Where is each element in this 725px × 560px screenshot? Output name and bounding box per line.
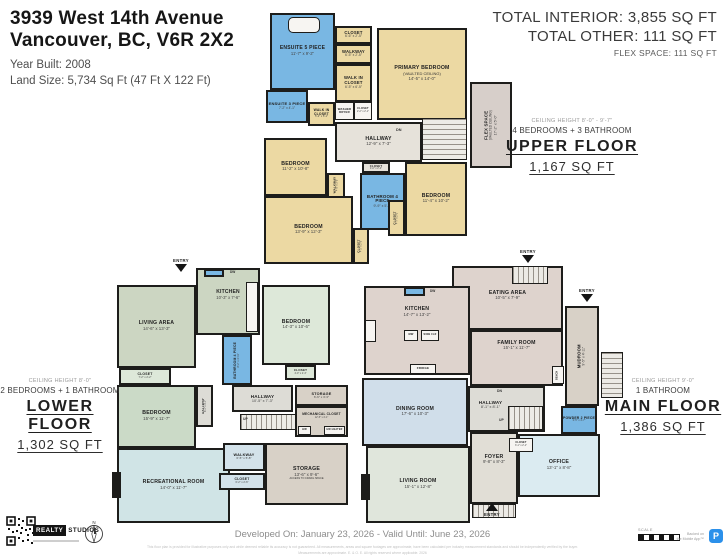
- mudroom: MUDROOM9'-5" x 4'-11": [565, 306, 599, 406]
- recreational-room: RECREATIONAL ROOM14'-0" x 11'-7": [117, 448, 230, 523]
- compass-north-label: N: [92, 520, 95, 525]
- ensuite-3-piece: ENSUITE 3 PIECE7'-2" x 4'-1": [266, 90, 308, 123]
- entry-main-top: ENTRY: [516, 249, 540, 263]
- closet-rot-2: CLOSET4'-7" x 2'-0": [388, 200, 405, 236]
- entry-arrow-icon: [175, 264, 187, 272]
- walkway-2: WALKWAY4'-5" x 3'-5": [327, 173, 345, 198]
- sink-lower: [204, 269, 224, 277]
- entry-main-right: ENTRY: [575, 288, 599, 302]
- closet-b: CLOSET7'-2" x 2'-2": [119, 368, 171, 385]
- entry-arrow-icon: [486, 503, 498, 511]
- bedroom-a: BEDROOM14'-3" x 10'-6": [262, 285, 330, 365]
- entry-lower: ENTRY: [169, 258, 193, 272]
- hw: HW: [298, 426, 311, 435]
- upper-floor-area: 1,167 SQ FT: [488, 159, 656, 174]
- compass-icon: N: [80, 518, 108, 546]
- main-bed-bath: 1 BATHROOM: [603, 386, 723, 395]
- stairs-upper: [422, 118, 467, 160]
- hallway-lower: HALLWAY10'-5" x 7'-3": [232, 385, 293, 412]
- primary-bedroom: PRIMARY BEDROOM(VAULTED CEILING)14'-5" x…: [377, 28, 467, 120]
- scale-label: SCALE: [638, 528, 653, 532]
- porch-top: [512, 266, 548, 284]
- dw-lower: DW: [230, 270, 235, 274]
- app-attribution: Backed on the Mobile App™: [668, 532, 704, 541]
- wine-cooler: WINE CLR: [421, 330, 439, 341]
- entry-label: ENTRY: [575, 288, 599, 293]
- entry-label: ENTRY: [516, 249, 540, 254]
- walkway-top: WALKWAY6'-5" x 2'-5": [335, 44, 372, 64]
- fine-print-line-2: Measurements are approximate. E. & O. E.…: [110, 551, 615, 555]
- main-floor-area: 1,386 SQ FT: [603, 419, 723, 434]
- dw-main: DW: [430, 289, 435, 293]
- lower-ceiling-height: CEILING HEIGHT 8'-0": [0, 378, 120, 384]
- developed-valid-dates: Developed On: January 23, 2026 - Valid U…: [0, 529, 725, 540]
- powder-2-piece: POWDER 2 PIECE3'-5" x 4'-7": [561, 406, 597, 434]
- entry-main-bottom: ENTRY: [480, 503, 504, 517]
- floor-plans-layer: ENSUITE 5 PIECE11'-7" x 9'-2"CLOSET6'-6"…: [0, 0, 725, 560]
- closet-top: CLOSET6'-6" x 2'-5": [335, 26, 372, 44]
- upper-floor-name: UPPER FLOOR: [488, 138, 656, 156]
- walk-in-closet-2: WALK IN CLOSET5'-2" x 5'-1": [308, 102, 335, 126]
- app-logo-icon: P: [709, 529, 723, 543]
- lower-floor-label: CEILING HEIGHT 8'-0" 2 BEDROOMS + 1 BATH…: [0, 378, 120, 452]
- app-attribution-line-2: the Mobile App™: [668, 537, 704, 542]
- main-floor-name: MAIN FLOOR: [603, 398, 723, 416]
- entry-label: ENTRY: [480, 512, 504, 517]
- fridge: FRIDGE: [410, 364, 436, 374]
- bedroom-3: BEDROOM11'-4" x 10'-2": [405, 162, 467, 236]
- brand-underline: [33, 540, 79, 542]
- hw-heater: HW HEATER: [324, 426, 345, 435]
- dining-room: DINING ROOM17'-6" x 10'-3": [362, 378, 468, 446]
- stove: [365, 320, 376, 342]
- washer-dryer: WASHER DRYER: [335, 102, 354, 120]
- storage-big: STORAGE13'-6" x 9'-6"ACCESS TO CRAWL SPA…: [265, 443, 348, 505]
- lower-bed-bath: 2 BEDROOMS + 1 BATHROOM: [0, 386, 120, 395]
- upper-ceiling-height: CEILING HEIGHT 8'-0" - 9'-7": [488, 118, 656, 124]
- entry-arrow-icon: [581, 294, 593, 302]
- closet-main: CLOSET3'-1" x 2'-1": [509, 438, 533, 452]
- walkway-lower: WALKWAY6'-5" x 5'-8": [223, 443, 265, 471]
- closet-hall: CLOSET4'-0" x 2'-4": [362, 162, 390, 173]
- brand-realty: REALTY: [33, 525, 66, 536]
- dn-label-upper: DN: [396, 128, 401, 132]
- entry-label: ENTRY: [169, 258, 193, 263]
- sink-main: [404, 287, 425, 296]
- fireplace-main: [361, 474, 370, 500]
- hallway-upper: HALLWAY12'-9" x 7'-3": [335, 122, 422, 162]
- bedroom-2: BEDROOM13'-9" x 12'-3": [264, 196, 353, 264]
- family-room: FAMILY ROOM15'-1" x 11'-7": [470, 330, 563, 386]
- floor-plan-page: { "header": { "address_line1": "3939 Wes…: [0, 0, 725, 560]
- bench: BENCH: [552, 366, 564, 384]
- living-area: LIVING AREA14'-6" x 13'-3": [117, 285, 196, 368]
- fireplace-lower: [112, 472, 121, 498]
- closet-box: CLOSET2'-2" x 2'-1": [354, 102, 372, 120]
- up-main: UP: [499, 418, 504, 422]
- fine-print-line-1: This floor plan is provided for illustra…: [10, 545, 715, 549]
- closet-c: CLOSET6'-2" x 2'-6": [219, 473, 265, 490]
- walk-in-closet: WALK IN CLOSET6'-5" x 6'-5": [335, 64, 372, 102]
- counter-lower: [246, 282, 258, 332]
- dn-main: DN: [497, 389, 502, 393]
- bathtub: [288, 17, 320, 33]
- upper-bed-bath: 4 BEDROOMS + 3 BATHROOM: [488, 126, 656, 135]
- main-ceiling-height: CEILING HEIGHT 9'-0": [603, 378, 723, 384]
- microwave: MW: [404, 330, 418, 341]
- bedroom-1: BEDROOM11'-2" x 10'-8": [264, 138, 327, 196]
- living-room: LIVING ROOM15'-1" x 12'-8": [366, 446, 470, 523]
- closet-rot-1: CLOSET4'-2" x 2'-5": [353, 228, 369, 264]
- lower-floor-area: 1,302 SQ FT: [0, 437, 120, 452]
- qr-code: [6, 516, 36, 546]
- main-floor-label: CEILING HEIGHT 9'-0" 1 BATHROOM MAIN FLO…: [603, 378, 723, 434]
- bathroom-4-piece-lower: BATHROOM 4 PIECE8'-2" x 4'-11": [222, 335, 252, 385]
- upper-floor-label: CEILING HEIGHT 8'-0" - 9'-7" 4 BEDROOMS …: [488, 118, 656, 174]
- bedroom-b: BEDROOM15'-9" x 11'-7": [117, 385, 196, 448]
- up-lower: UP: [243, 417, 248, 421]
- hallway-small-lower: HALLWAY8'-1" x 3'-1": [196, 385, 213, 427]
- entry-arrow-icon: [522, 255, 534, 263]
- lower-floor-name: LOWER FLOOR: [0, 398, 120, 434]
- closet-a: CLOSET4'-0" x 2'-4": [285, 365, 316, 380]
